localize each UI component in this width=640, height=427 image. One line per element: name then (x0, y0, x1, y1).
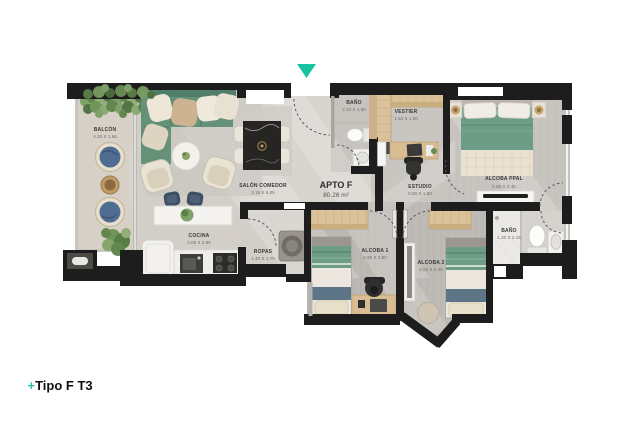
svg-text:1.30 X 2.15: 1.30 X 2.15 (497, 235, 521, 240)
svg-text:ESTUDIO: ESTUDIO (408, 184, 432, 190)
svg-text:VESTIER: VESTIER (395, 109, 418, 115)
svg-text:2.10 X 1.50: 2.10 X 1.50 (342, 107, 366, 112)
svg-text:0.80 X 1.50: 0.80 X 1.50 (408, 191, 432, 196)
svg-text:SALÓN COMEDOR: SALÓN COMEDOR (239, 181, 287, 189)
svg-text:BAÑO: BAÑO (346, 99, 362, 106)
svg-text:4.20 X 1.65: 4.20 X 1.65 (93, 134, 117, 139)
svg-text:BALCÓN: BALCÓN (94, 125, 117, 133)
svg-text:COCINA: COCINA (189, 233, 210, 239)
svg-text:1.50 X 1.50: 1.50 X 1.50 (394, 116, 418, 121)
svg-text:80.26 m²: 80.26 m² (323, 192, 349, 199)
svg-text:2.05 X 2.85: 2.05 X 2.85 (187, 240, 211, 245)
svg-text:2.80 X 3.40: 2.80 X 3.40 (492, 184, 516, 189)
svg-text:2.50 X 2.80: 2.50 X 2.80 (363, 255, 387, 260)
svg-text:2.50 X 2.40: 2.50 X 2.40 (419, 267, 443, 272)
svg-text:ALCOBA 1: ALCOBA 1 (362, 248, 389, 254)
svg-text:ALCOBA PPAL: ALCOBA PPAL (485, 176, 523, 182)
svg-text:BAÑO: BAÑO (501, 227, 517, 234)
svg-text:3.15 X 5.05: 3.15 X 5.05 (251, 190, 275, 195)
svg-text:+Tipo F T3: +Tipo F T3 (28, 378, 93, 393)
svg-text:ROPAS: ROPAS (254, 249, 273, 255)
svg-text:1.40 X 1.70: 1.40 X 1.70 (251, 256, 275, 261)
svg-text:APTO F: APTO F (320, 180, 353, 190)
svg-text:ALCOBA 2: ALCOBA 2 (418, 260, 445, 266)
